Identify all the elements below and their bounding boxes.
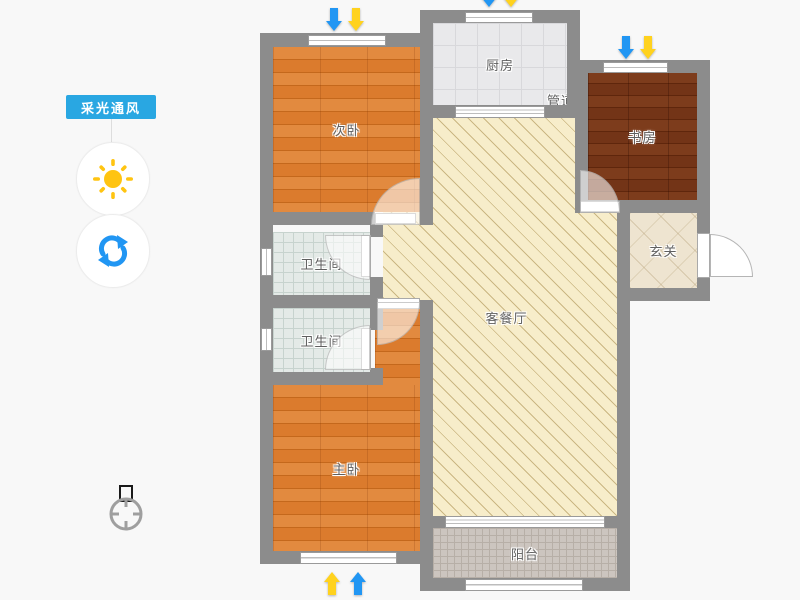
wind-arrow-icon — [350, 572, 366, 595]
room-label-living-dining: 客餐厅 — [485, 308, 527, 327]
window-secondary-bedroom — [308, 35, 386, 46]
room-label-secondary-bedroom: 次卧 — [332, 120, 360, 139]
wind-arrow-icon — [481, 0, 497, 7]
window-bathroom-2 — [261, 328, 272, 351]
wall — [370, 368, 383, 385]
entry-door — [697, 233, 710, 278]
window-master-bedroom — [300, 552, 397, 564]
light-arrow-icon — [348, 8, 364, 31]
light-arrow-icon — [640, 36, 656, 59]
window-balcony — [465, 579, 583, 591]
room-entry[interactable]: 玄关 — [630, 213, 697, 288]
wall — [617, 213, 630, 591]
room-label-master-bedroom: 主卧 — [332, 459, 360, 478]
wall — [260, 372, 383, 385]
window-bathroom-1 — [261, 248, 272, 276]
refresh-icon — [93, 231, 133, 271]
compass-north-icon — [104, 484, 148, 532]
sun-icon — [91, 157, 135, 201]
light-arrow-icon — [324, 572, 340, 595]
sliding-door-kitchen — [455, 106, 545, 118]
wall — [420, 10, 433, 225]
wall — [260, 295, 383, 308]
wall — [420, 300, 433, 591]
room-master-bedroom[interactable]: 主卧 — [273, 385, 420, 551]
lighting-ventilation-badge[interactable]: 采光通风 — [66, 95, 156, 119]
room-label-study: 书房 — [628, 127, 656, 146]
room-label-entry: 玄关 — [649, 241, 677, 260]
wall — [260, 212, 375, 225]
wind-arrow-icon — [618, 36, 634, 59]
wind-arrow-icon — [326, 8, 342, 31]
daylight-button[interactable] — [76, 142, 150, 216]
entry-door-swing — [710, 234, 753, 277]
sliding-door-balcony — [445, 516, 605, 528]
ventilation-button[interactable] — [76, 214, 150, 288]
wall — [605, 516, 617, 528]
wall — [433, 516, 445, 528]
wall — [260, 33, 273, 564]
wall — [697, 60, 710, 234]
window-kitchen-top — [465, 12, 533, 23]
wall — [370, 225, 383, 237]
window-study — [603, 62, 668, 73]
floor-plan-canvas: 客餐厅 厨房 次卧 书房 玄关 卫生间 卫生间 主卧 阳台 管道 — [0, 0, 800, 600]
room-balcony[interactable]: 阳台 — [433, 528, 617, 578]
wall — [697, 277, 710, 301]
connector-line — [111, 119, 112, 143]
room-label-balcony: 阳台 — [511, 544, 539, 563]
light-arrow-icon — [503, 0, 519, 7]
room-label-kitchen: 厨房 — [486, 55, 514, 74]
